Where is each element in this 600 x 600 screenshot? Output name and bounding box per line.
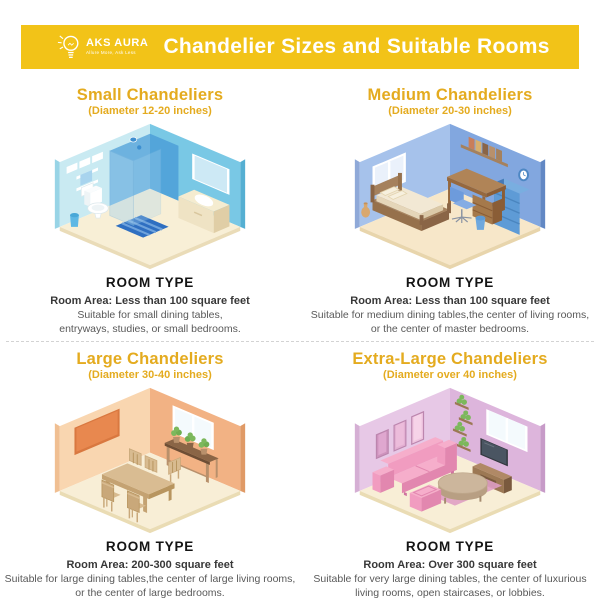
section-title: Extra-Large Chandeliers <box>300 350 600 369</box>
section-small-chandeliers: Small Chandeliers (Diameter 12-20 inches… <box>0 80 300 337</box>
room-type-label: ROOM TYPE <box>300 275 600 290</box>
section-extra-large-chandeliers: Extra-Large Chandeliers (Diameter over 4… <box>300 344 600 600</box>
section-large-chandeliers: Large Chandeliers (Diameter 30-40 inches… <box>0 344 300 600</box>
brand-tagline: Allure More, Ask Less <box>86 51 148 56</box>
section-subtitle: (Diameter 30-40 inches) <box>0 369 300 381</box>
room-area: Room Area: 200-300 square feet <box>0 559 300 571</box>
section-title: Large Chandeliers <box>0 350 300 369</box>
room-type-label: ROOM TYPE <box>0 275 300 290</box>
room-description: Suitable for very large dining tables, t… <box>300 573 600 600</box>
section-title: Small Chandeliers <box>0 86 300 105</box>
brand-logo: AKS AURA Allure More, Ask Less <box>57 33 148 61</box>
bucket <box>476 216 486 230</box>
lightbulb-icon <box>57 33 81 61</box>
room-area: Room Area: Less than 100 square feet <box>0 295 300 307</box>
page-title: Chandelier Sizes and Suitable Rooms <box>163 35 549 59</box>
room-area: Room Area: Less than 100 square feet <box>300 295 600 307</box>
room-type-label: ROOM TYPE <box>300 539 600 554</box>
brand-name: AKS AURA <box>86 38 148 49</box>
coffee-table <box>438 473 487 504</box>
room-type-label: ROOM TYPE <box>0 539 300 554</box>
section-medium-chandeliers: Medium Chandeliers (Diameter 20-30 inche… <box>300 80 600 337</box>
room-description: Suitable for large dining tables,the cen… <box>0 573 300 600</box>
room-description: Suitable for small dining tables, entryw… <box>0 309 300 337</box>
bathroom-illustration <box>47 118 253 273</box>
infographic-canvas: AKS AURA Allure More, Ask Less Chandelie… <box>0 0 600 600</box>
room-area: Room Area: Over 300 square feet <box>300 559 600 571</box>
dashed-divider <box>6 341 594 342</box>
living-room-illustration <box>347 382 553 537</box>
section-subtitle: (Diameter 12-20 inches) <box>0 105 300 117</box>
brand-text: AKS AURA Allure More, Ask Less <box>86 38 148 56</box>
section-subtitle: (Diameter over 40 inches) <box>300 369 600 381</box>
room-description: Suitable for medium dining tables,the ce… <box>300 309 600 337</box>
header-banner: AKS AURA Allure More, Ask Less Chandelie… <box>21 25 579 69</box>
shower-glass-panels <box>110 149 161 225</box>
bedroom-illustration <box>347 118 553 273</box>
section-subtitle: (Diameter 20-30 inches) <box>300 105 600 117</box>
dining-room-illustration <box>47 382 253 537</box>
wall-clock <box>518 169 529 182</box>
trash-bin <box>70 213 79 227</box>
section-title: Medium Chandeliers <box>300 86 600 105</box>
